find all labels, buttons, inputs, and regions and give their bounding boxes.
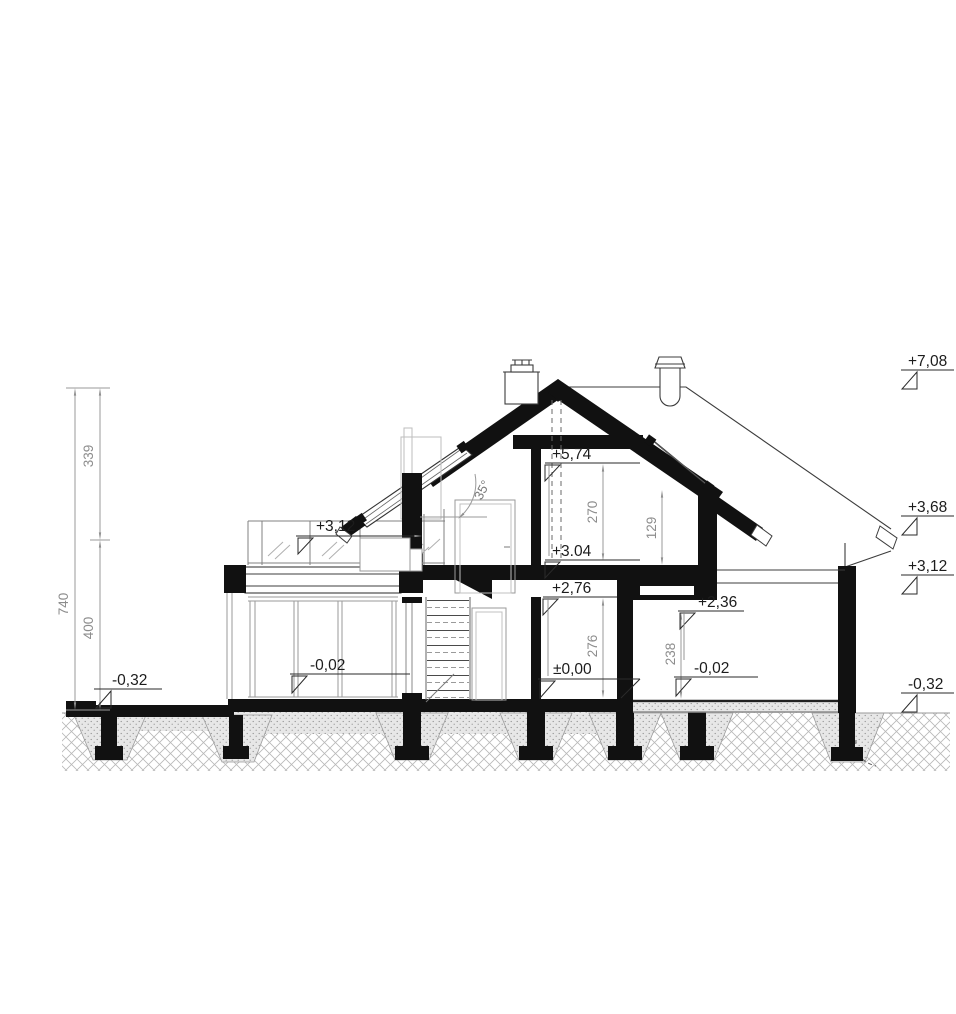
- eaves-gutter: [845, 526, 897, 567]
- attic-floor-slab: [402, 565, 717, 580]
- vent-pipe: [655, 357, 685, 406]
- level-ridge-label: +7,08: [908, 353, 947, 370]
- walls: [360, 449, 856, 713]
- level-attic-ceiling-label: +5,74: [552, 446, 592, 463]
- chimney: [503, 360, 540, 404]
- level-eaves-label: +3,68: [908, 499, 947, 516]
- level-porch-ceiling: +2,36: [678, 594, 744, 660]
- left-wing-roof-end: [224, 565, 246, 593]
- porch-column: [838, 566, 856, 713]
- level-porch-floor-label: -0,02: [694, 660, 729, 677]
- level-terrace-ground: -0,32: [94, 672, 162, 708]
- level-gf-floor-label: ±0,00: [553, 661, 592, 678]
- level-terrace-threshold-label: -0,02: [310, 657, 345, 674]
- roof-pitch-label: 35°: [471, 478, 493, 502]
- gf-door: [472, 608, 506, 700]
- dim-gf-room: 276: [585, 635, 600, 658]
- gf-right-wall: [617, 600, 633, 700]
- architectural-section-canvas: 35° 740 339 400 270 129 276 238 +5,74: [0, 0, 956, 1014]
- level-porch-roof: +3,12: [901, 558, 954, 594]
- upper-right-wall: [698, 489, 717, 581]
- level-terrace-ground-label: -0,32: [112, 672, 147, 689]
- garden-room: [224, 553, 423, 699]
- level-ridge: +7,08: [901, 353, 954, 389]
- dim-porch-room: 238: [663, 643, 678, 666]
- gf-left-window: [402, 597, 422, 701]
- level-gf-ceiling-label: +2,76: [552, 580, 591, 597]
- attic-partition-wall: [531, 449, 541, 566]
- dim-roof-zone: 339: [81, 445, 96, 468]
- level-porch-floor: -0,02: [674, 660, 758, 696]
- stair-opening-edge: [456, 580, 492, 599]
- dim-knee: 129: [644, 517, 659, 540]
- level-ground-right: -0,32: [901, 676, 954, 712]
- glazed-wall: [227, 593, 398, 699]
- dim-total: 740: [56, 593, 71, 616]
- level-attic-floor-label: +3.04: [552, 543, 592, 560]
- level-balcony-label: +3,12: [316, 518, 355, 535]
- level-eaves: +3,68: [901, 499, 954, 535]
- dim-attic-room: 270: [585, 501, 600, 524]
- left-dimension-chain: 740 339 400: [56, 388, 110, 710]
- ground-floor-slab: [228, 699, 633, 712]
- level-porch-roof-label: +3,12: [908, 558, 947, 575]
- section-drawing: 35° 740 339 400 270 129 276 238 +5,74: [0, 0, 956, 1014]
- level-porch-ceiling-label: +2,36: [698, 594, 737, 611]
- staircase: [426, 597, 470, 702]
- right-margin-level-markers: +7,08 +3,68 +3,12 -0,32: [901, 353, 954, 712]
- porch-beam-slot: [640, 586, 694, 595]
- dim-wall-zone: 400: [81, 617, 96, 640]
- terrace-slab: [94, 705, 234, 717]
- terrace-edge-block: [66, 701, 96, 717]
- level-ground-right-label: -0,32: [908, 676, 943, 693]
